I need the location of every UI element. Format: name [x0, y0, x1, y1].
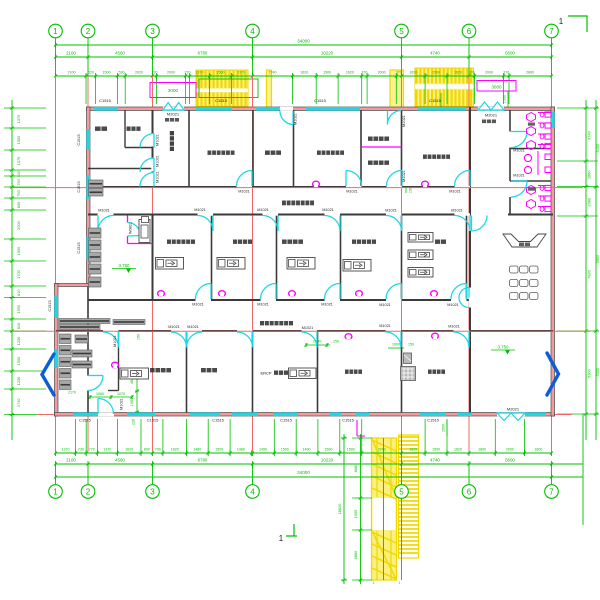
svg-text:4560: 4560 — [115, 458, 125, 463]
svg-text:1370: 1370 — [16, 114, 21, 123]
svg-text:220: 220 — [132, 419, 136, 425]
svg-text:2740: 2740 — [269, 71, 277, 75]
svg-text:C1515: C1515 — [79, 418, 92, 423]
svg-text:2740: 2740 — [378, 448, 386, 452]
svg-text:C1515: C1515 — [147, 418, 160, 423]
svg-text:C1515: C1515 — [48, 300, 52, 311]
svg-text:M1021: M1021 — [194, 208, 206, 212]
svg-text:34000: 34000 — [297, 470, 310, 475]
svg-text:1500: 1500 — [347, 448, 355, 452]
svg-text:1500: 1500 — [323, 71, 331, 75]
svg-text:8660: 8660 — [353, 463, 358, 472]
svg-text:M1021: M1021 — [257, 208, 269, 212]
svg-text:1000: 1000 — [392, 343, 400, 347]
svg-text:1700: 1700 — [16, 269, 21, 278]
svg-text:150: 150 — [333, 340, 339, 344]
svg-text:M1021: M1021 — [402, 115, 406, 127]
svg-text:M1021: M1021 — [98, 209, 110, 213]
svg-text:2100: 2100 — [66, 458, 76, 463]
svg-text:M1021: M1021 — [113, 335, 117, 347]
svg-text:M1021: M1021 — [322, 208, 334, 212]
svg-text:M1021: M1021 — [156, 155, 160, 167]
svg-text:750: 750 — [16, 189, 21, 196]
svg-text:270: 270 — [185, 71, 191, 75]
svg-text:530: 530 — [119, 71, 125, 75]
svg-text:520: 520 — [88, 71, 94, 75]
svg-text:5600: 5600 — [505, 458, 515, 463]
svg-text:C1515: C1515 — [77, 181, 81, 192]
svg-text:1: 1 — [279, 534, 284, 543]
svg-text:6780: 6780 — [198, 51, 208, 56]
svg-text:1800: 1800 — [478, 448, 486, 452]
svg-text:1500: 1500 — [432, 71, 440, 75]
svg-text:M1021: M1021 — [379, 303, 391, 307]
svg-text:1500: 1500 — [324, 448, 332, 452]
svg-text:3.750: 3.750 — [498, 345, 510, 350]
svg-text:1230: 1230 — [16, 336, 21, 345]
svg-text:1500: 1500 — [215, 448, 223, 452]
svg-text:2860: 2860 — [526, 71, 534, 75]
svg-text:5600: 5600 — [505, 51, 515, 56]
svg-text:1740: 1740 — [16, 398, 21, 407]
svg-text:8660: 8660 — [353, 550, 358, 559]
svg-text:4560: 4560 — [115, 51, 125, 56]
svg-text:2000: 2000 — [485, 71, 493, 75]
svg-text:2170: 2170 — [68, 391, 76, 395]
svg-text:7820: 7820 — [587, 269, 592, 278]
svg-text:2100: 2100 — [68, 71, 76, 75]
svg-text:M1021: M1021 — [379, 324, 391, 328]
svg-text:M1021: M1021 — [294, 113, 298, 125]
svg-text:1490: 1490 — [303, 448, 311, 452]
svg-text:C1515: C1515 — [77, 134, 81, 145]
svg-text:1660: 1660 — [587, 170, 592, 179]
svg-text:730: 730 — [78, 448, 84, 452]
svg-text:M2021: M2021 — [167, 112, 180, 117]
svg-text:1: 1 — [53, 488, 58, 497]
svg-text:10220: 10220 — [321, 51, 334, 56]
svg-text:830: 830 — [16, 201, 21, 208]
svg-text:C1515: C1515 — [215, 98, 228, 103]
svg-text:4740: 4740 — [430, 458, 440, 463]
svg-text:1620: 1620 — [409, 448, 417, 452]
svg-text:1370: 1370 — [62, 448, 70, 452]
svg-text:4740: 4740 — [430, 51, 440, 56]
svg-text:3: 3 — [150, 488, 155, 497]
svg-text:M1021: M1021 — [156, 134, 160, 146]
svg-text:700: 700 — [155, 448, 161, 452]
svg-text:370: 370 — [469, 71, 475, 75]
svg-text:6: 6 — [467, 27, 472, 36]
svg-text:4: 4 — [250, 27, 255, 36]
svg-text:C1515: C1515 — [77, 242, 81, 253]
svg-text:1480: 1480 — [237, 448, 245, 452]
svg-text:1500: 1500 — [16, 356, 21, 365]
svg-text:7: 7 — [549, 488, 554, 497]
svg-text:7: 7 — [549, 27, 554, 36]
svg-text:M2021: M2021 — [485, 113, 498, 118]
svg-text:2000: 2000 — [378, 71, 386, 75]
svg-text:1500: 1500 — [432, 448, 440, 452]
svg-text:C1515: C1515 — [429, 98, 442, 103]
svg-text:M1021: M1021 — [187, 325, 199, 329]
svg-text:C1515: C1515 — [427, 418, 440, 423]
svg-text:10220: 10220 — [321, 458, 334, 463]
svg-text:770: 770 — [89, 448, 95, 452]
svg-text:18820: 18820 — [337, 503, 342, 515]
svg-text:1500: 1500 — [103, 71, 111, 75]
svg-text:2: 2 — [86, 27, 91, 36]
svg-text:150: 150 — [137, 334, 141, 340]
svg-text:1500: 1500 — [16, 246, 21, 255]
svg-text:6780: 6780 — [198, 458, 208, 463]
svg-text:1620: 1620 — [409, 71, 417, 75]
svg-text:C1515: C1515 — [99, 98, 112, 103]
svg-text:1: 1 — [53, 27, 58, 36]
svg-text:1490: 1490 — [259, 448, 267, 452]
svg-text:M1021: M1021 — [302, 326, 314, 330]
svg-text:5300: 5300 — [595, 367, 600, 376]
svg-text:1: 1 — [399, 581, 401, 585]
svg-text:4: 4 — [250, 488, 255, 497]
svg-text:1500: 1500 — [353, 509, 358, 518]
svg-text:M1021: M1021 — [156, 171, 160, 183]
svg-text:1620: 1620 — [125, 448, 133, 452]
svg-text:1370: 1370 — [196, 71, 204, 75]
svg-text:1230: 1230 — [16, 376, 21, 385]
svg-text:800: 800 — [144, 448, 150, 452]
svg-text:3000: 3000 — [491, 85, 502, 90]
svg-text:5: 5 — [399, 488, 404, 497]
svg-text:M1021: M1021 — [449, 190, 461, 194]
svg-text:1500: 1500 — [16, 304, 21, 313]
svg-text:1370: 1370 — [16, 156, 21, 165]
svg-text:750: 750 — [16, 178, 21, 185]
svg-text:2000: 2000 — [506, 448, 514, 452]
svg-text:1: 1 — [373, 581, 375, 585]
svg-text:2100: 2100 — [66, 51, 76, 56]
svg-text:1800: 1800 — [534, 448, 542, 452]
svg-text:C1515: C1515 — [212, 418, 225, 423]
svg-text:1500: 1500 — [442, 424, 446, 432]
svg-text:M2021: M2021 — [507, 407, 520, 412]
svg-text:2000: 2000 — [16, 220, 21, 229]
svg-text:3740: 3740 — [587, 130, 592, 139]
svg-text:M1021: M1021 — [120, 398, 124, 410]
svg-text:1060: 1060 — [96, 392, 104, 396]
svg-text:1500: 1500 — [16, 135, 21, 144]
svg-text:M1021: M1021 — [447, 303, 459, 307]
svg-text:5300: 5300 — [587, 368, 592, 377]
svg-text:M1021: M1021 — [451, 209, 463, 213]
svg-text:1620: 1620 — [300, 71, 308, 75]
svg-text:2020: 2020 — [135, 71, 143, 75]
svg-text:1500: 1500 — [281, 448, 289, 452]
svg-text:5: 5 — [399, 27, 404, 36]
svg-text:810: 810 — [16, 322, 21, 329]
svg-text:M1021: M1021 — [346, 190, 358, 194]
svg-text:M1021: M1021 — [513, 174, 525, 178]
svg-text:810: 810 — [16, 289, 21, 296]
svg-text:370: 370 — [503, 71, 509, 75]
svg-text:M1021: M1021 — [321, 303, 333, 307]
svg-text:6: 6 — [467, 488, 472, 497]
svg-text:34000: 34000 — [297, 39, 310, 44]
svg-text:1480: 1480 — [193, 448, 201, 452]
svg-text:M1021: M1021 — [448, 325, 460, 329]
svg-text:3.750: 3.750 — [119, 263, 131, 268]
svg-text:C1515: C1515 — [314, 98, 327, 103]
svg-text:370: 370 — [361, 71, 367, 75]
svg-text:1000: 1000 — [130, 398, 134, 406]
svg-text:ERCP: ERCP — [260, 371, 271, 376]
svg-text:9900: 9900 — [595, 254, 600, 263]
svg-text:2: 2 — [86, 488, 91, 497]
svg-text:1370: 1370 — [103, 448, 111, 452]
svg-text:W0821: W0821 — [129, 222, 133, 234]
svg-text:1500: 1500 — [217, 71, 225, 75]
svg-text:1500: 1500 — [503, 95, 507, 103]
svg-text:C1515: C1515 — [280, 418, 293, 423]
svg-text:2080: 2080 — [587, 197, 592, 206]
svg-text:M1021: M1021 — [402, 170, 406, 182]
svg-text:1620: 1620 — [454, 71, 462, 75]
svg-text:1070: 1070 — [117, 392, 125, 396]
svg-text:1620: 1620 — [454, 448, 462, 452]
svg-text:5400: 5400 — [595, 143, 600, 152]
svg-text:M1021: M1021 — [513, 149, 525, 153]
svg-text:2000: 2000 — [167, 71, 175, 75]
svg-text:M1021: M1021 — [238, 190, 250, 194]
svg-text:1: 1 — [559, 17, 564, 26]
svg-text:150: 150 — [408, 343, 414, 347]
svg-text:1620: 1620 — [346, 71, 354, 75]
svg-text:1620: 1620 — [171, 448, 179, 452]
svg-text:M1021: M1021 — [168, 325, 180, 329]
svg-text:3: 3 — [150, 27, 155, 36]
svg-text:3000: 3000 — [168, 88, 179, 93]
svg-text:C1515: C1515 — [342, 418, 355, 423]
svg-text:M1021: M1021 — [192, 303, 204, 307]
svg-text:M1021: M1021 — [257, 303, 269, 307]
svg-text:1370: 1370 — [237, 71, 245, 75]
svg-text:M1021: M1021 — [385, 209, 397, 213]
